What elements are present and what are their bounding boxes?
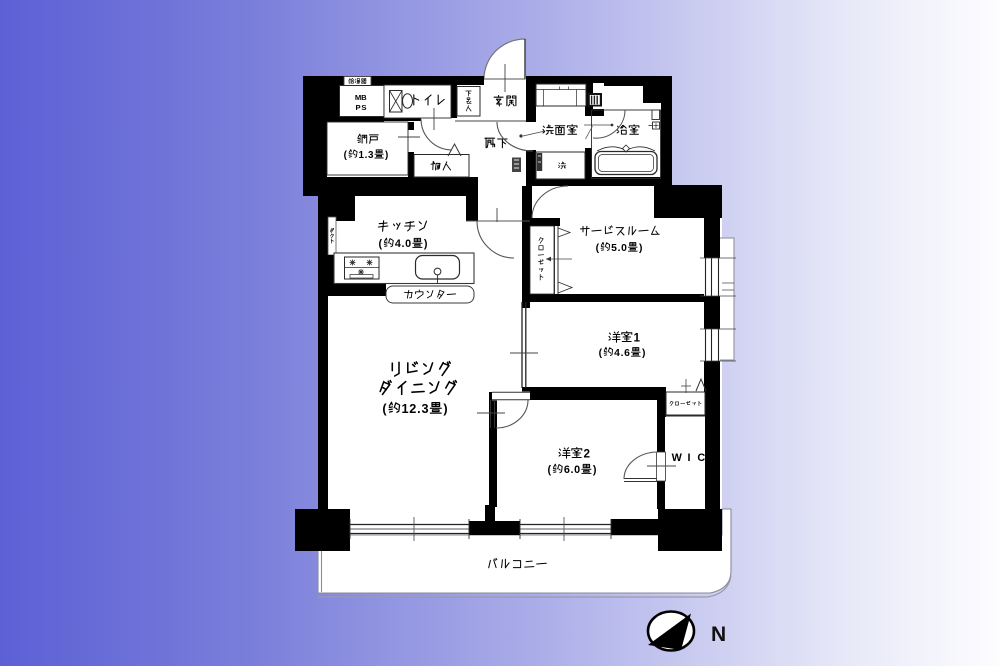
- svg-text:4: 4: [614, 348, 620, 359]
- svg-text:0: 0: [405, 238, 411, 250]
- svg-text:.: .: [571, 464, 574, 476]
- svg-text:3: 3: [421, 402, 428, 416]
- svg-text:1: 1: [359, 150, 365, 161]
- svg-text:P: P: [355, 103, 360, 112]
- svg-text:): ): [639, 243, 642, 254]
- svg-text:.: .: [402, 238, 405, 250]
- svg-text:B: B: [361, 93, 367, 102]
- svg-text:(: (: [548, 464, 552, 476]
- svg-text:I: I: [688, 452, 691, 464]
- svg-text:4: 4: [395, 238, 401, 250]
- svg-text:): ): [642, 348, 645, 359]
- svg-text:N: N: [711, 623, 726, 646]
- svg-text:2: 2: [583, 448, 590, 461]
- svg-text:1: 1: [401, 402, 408, 416]
- svg-text:): ): [593, 464, 597, 476]
- svg-text:.: .: [417, 402, 421, 416]
- svg-text:(: (: [599, 348, 603, 359]
- svg-text:C: C: [697, 452, 705, 464]
- svg-text:3: 3: [368, 150, 374, 161]
- svg-text:): ): [443, 402, 447, 416]
- svg-text:): ): [424, 238, 428, 250]
- svg-text:1: 1: [633, 332, 640, 345]
- svg-text:0: 0: [621, 243, 627, 254]
- svg-text:5: 5: [611, 243, 617, 254]
- svg-text:(: (: [379, 238, 383, 250]
- svg-text:6: 6: [564, 464, 570, 476]
- svg-text:W: W: [672, 452, 683, 464]
- svg-text:6: 6: [624, 348, 630, 359]
- svg-text:2: 2: [409, 402, 416, 416]
- svg-text:(: (: [596, 243, 600, 254]
- svg-text:0: 0: [574, 464, 580, 476]
- svg-text:S: S: [361, 103, 366, 112]
- svg-text:): ): [385, 150, 388, 161]
